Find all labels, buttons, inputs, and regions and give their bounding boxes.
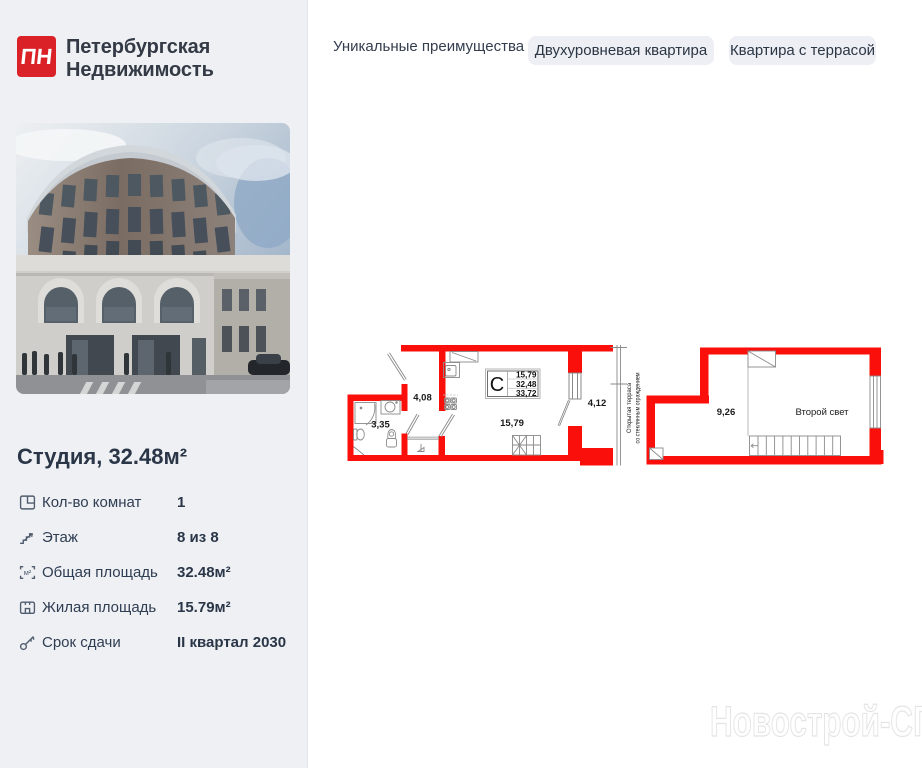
svg-text:9,26: 9,26: [717, 407, 736, 418]
svg-text:3,35: 3,35: [371, 420, 390, 431]
svg-text:33,72: 33,72: [516, 389, 537, 398]
svg-text:С: С: [490, 374, 504, 396]
svg-text:Второй свет: Второй свет: [795, 407, 849, 418]
svg-text:15,79: 15,79: [516, 371, 537, 380]
svg-text:32,48: 32,48: [516, 380, 537, 389]
svg-text:со стеклянным ограждением: со стеклянным ограждением: [635, 372, 642, 443]
svg-text:15,79: 15,79: [500, 418, 524, 429]
svg-text:4,08: 4,08: [413, 393, 432, 404]
svg-text:4,12: 4,12: [588, 398, 607, 409]
svg-text:Открытая терраса: Открытая терраса: [626, 383, 633, 433]
